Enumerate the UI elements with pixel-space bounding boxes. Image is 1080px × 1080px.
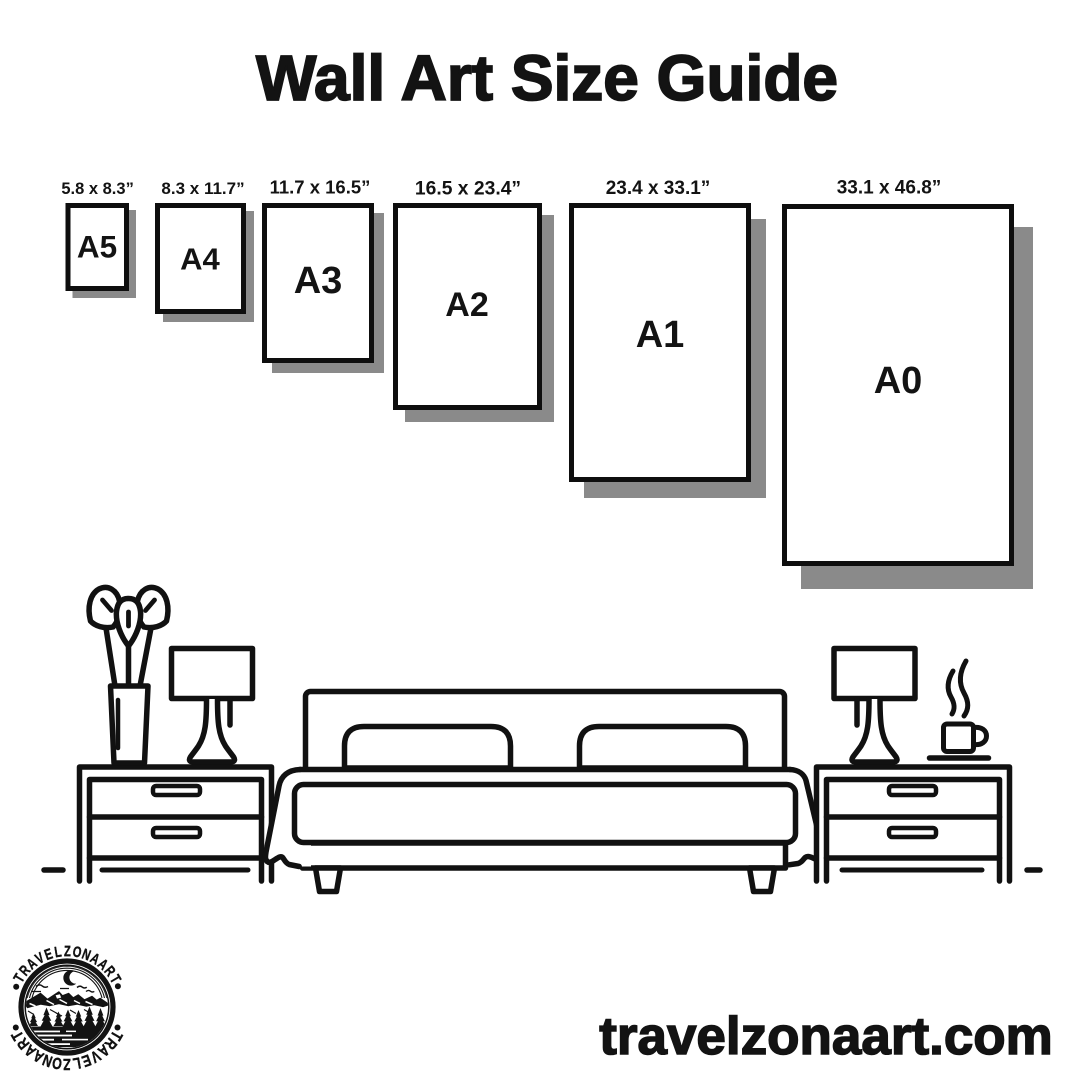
svg-text:Z: Z [63, 1054, 71, 1072]
svg-text:11.7 x 16.5”: 11.7 x 16.5” [270, 177, 371, 198]
svg-text:16.5 x 23.4”: 16.5 x 23.4” [415, 179, 521, 200]
svg-text:Wall Art Size Guide: Wall Art Size Guide [256, 42, 838, 114]
svg-text:5.8 x 8.3”: 5.8 x 8.3” [61, 180, 133, 198]
svg-text:23.4 x 33.1”: 23.4 x 33.1” [606, 178, 711, 199]
svg-text:A5: A5 [77, 229, 117, 265]
svg-text:travelzonaart.com: travelzonaart.com [599, 1007, 1053, 1066]
svg-text:A3: A3 [294, 260, 343, 302]
svg-text:33.1 x 46.8”: 33.1 x 46.8” [837, 178, 942, 199]
svg-text:A2: A2 [445, 286, 488, 324]
svg-text:A1: A1 [636, 314, 685, 356]
svg-text:8.3 x 11.7”: 8.3 x 11.7” [161, 179, 244, 198]
svg-text:Z: Z [64, 942, 71, 959]
svg-text:A0: A0 [874, 360, 923, 402]
svg-text:A4: A4 [180, 242, 220, 277]
